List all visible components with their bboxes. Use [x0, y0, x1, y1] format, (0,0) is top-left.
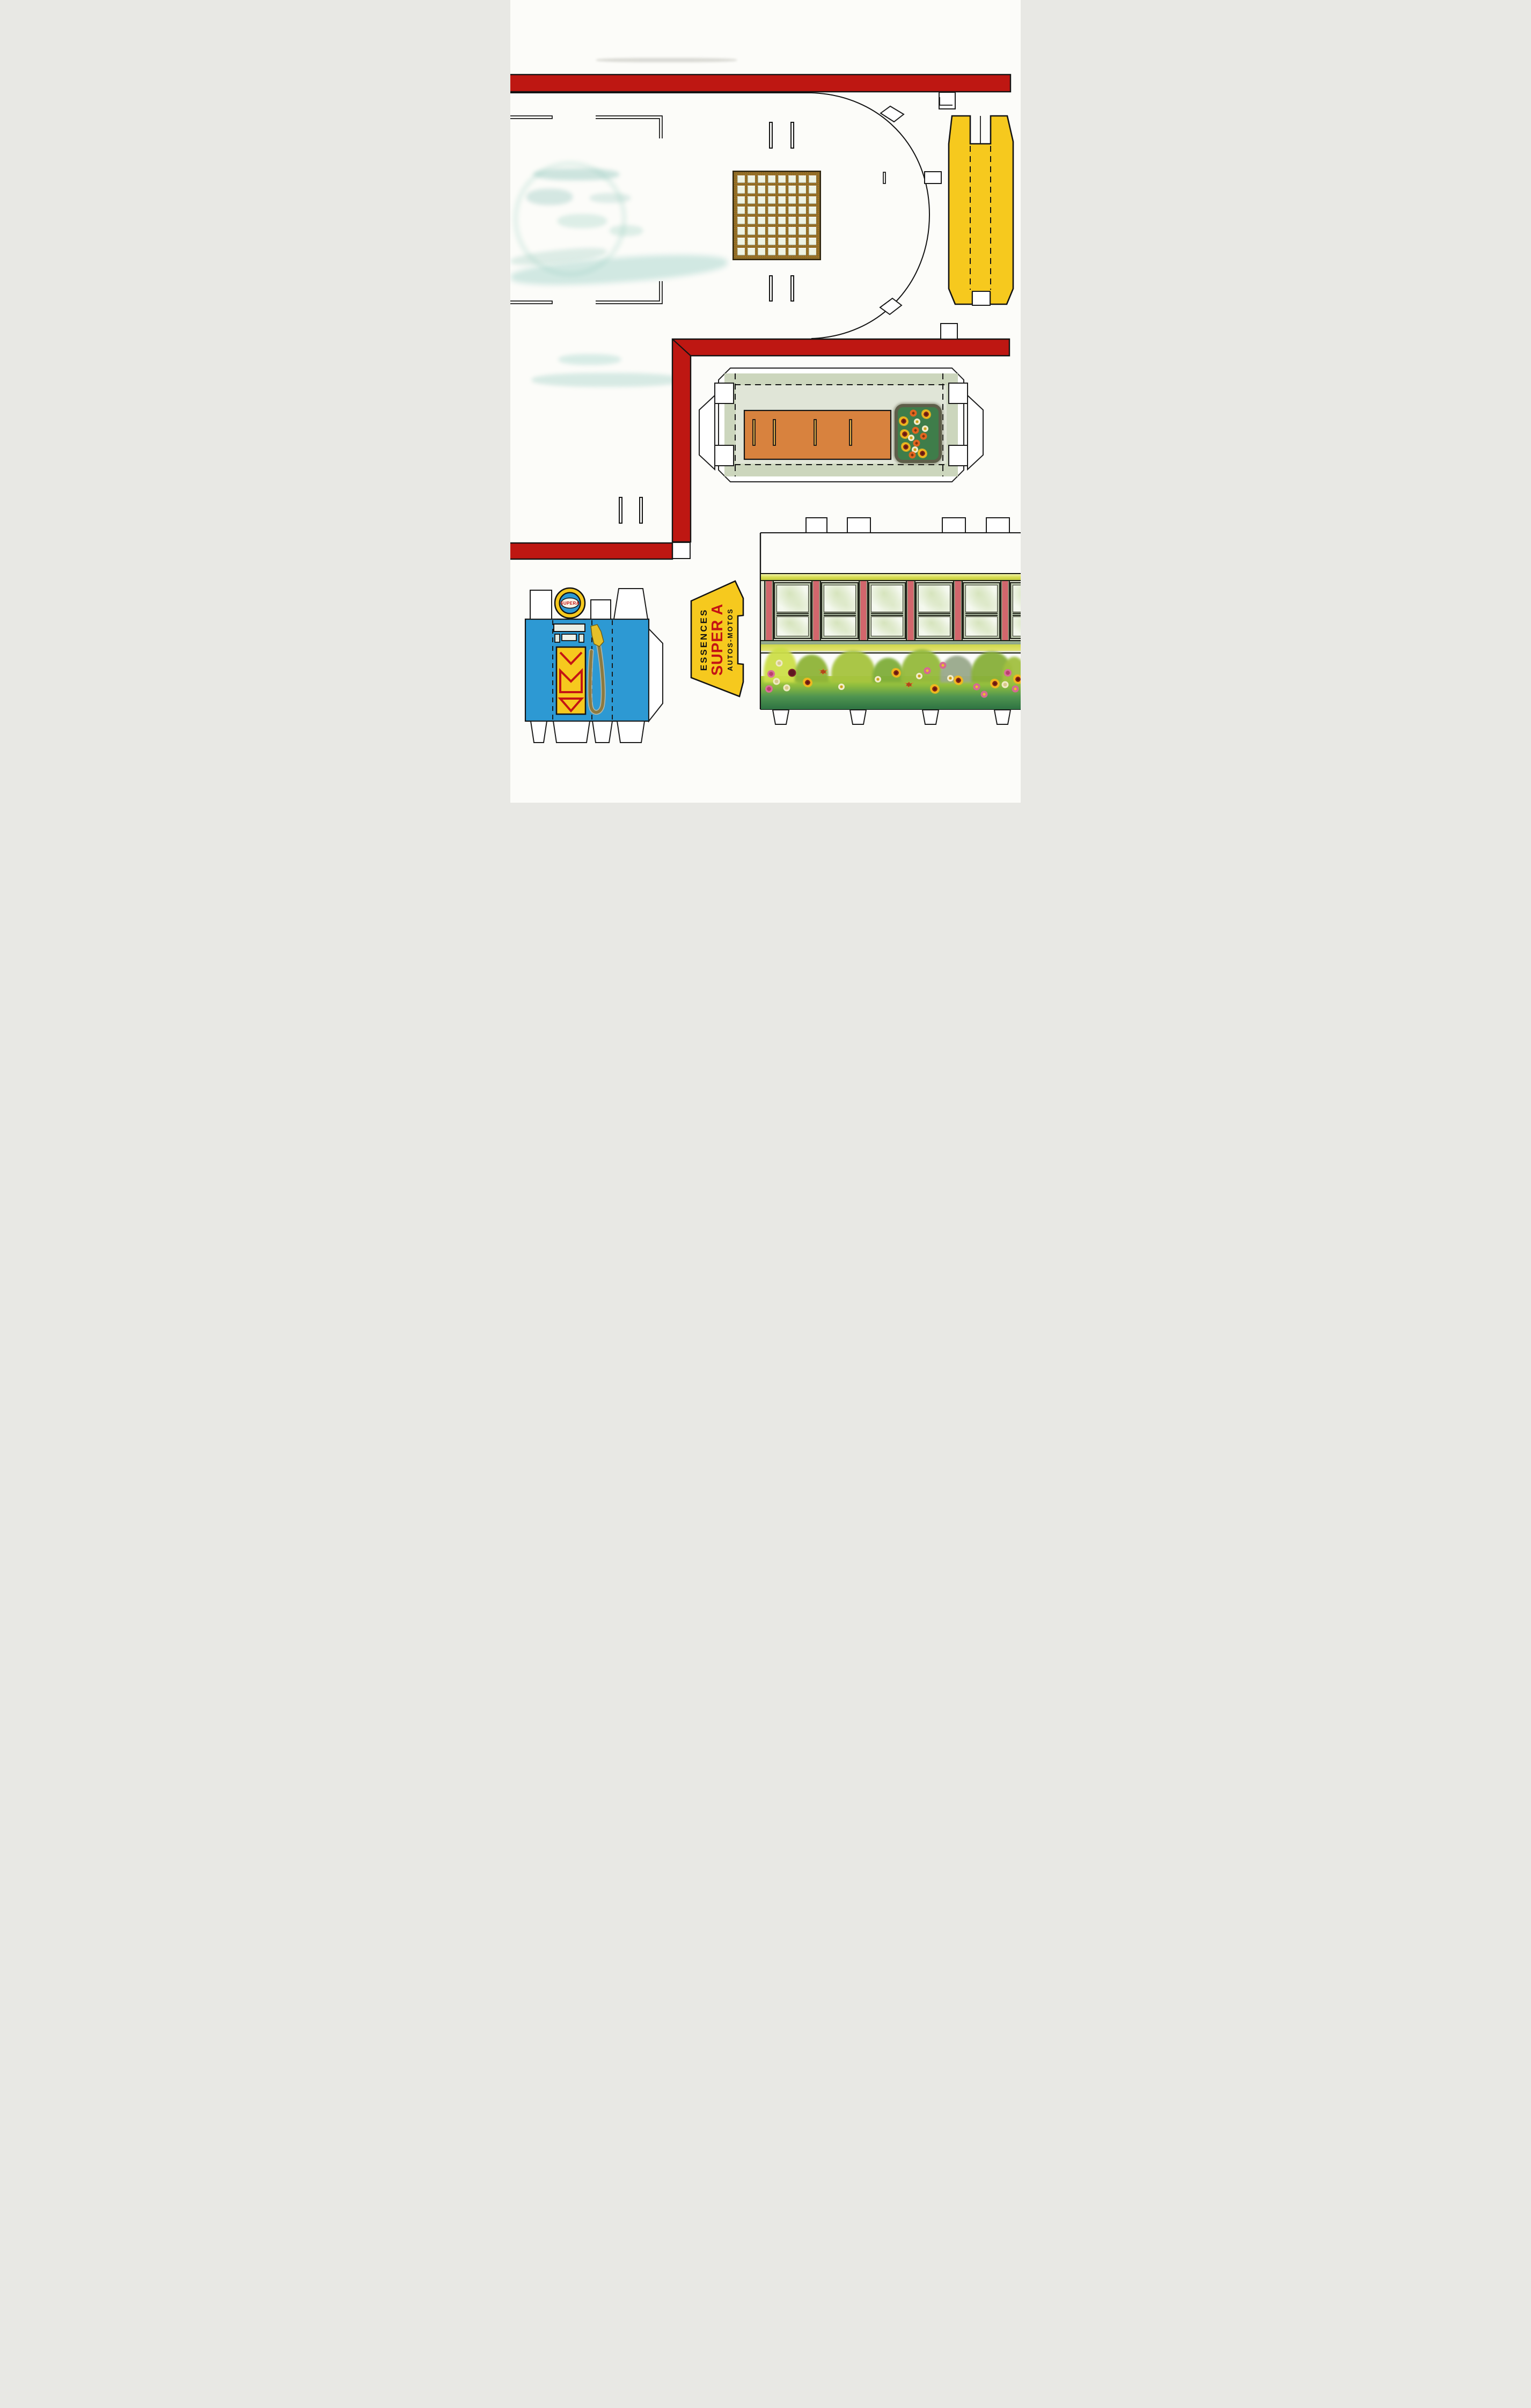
window-row — [761, 581, 1021, 640]
skylight-pane — [737, 207, 745, 214]
skylight-pane — [788, 186, 796, 193]
window-pillar — [764, 581, 774, 640]
papercraft-sheet: SUPERA ESSENCES SUPER A AUTOS-MOTOS — [510, 0, 1021, 803]
skylight-pane — [768, 186, 775, 193]
flower-zinnia — [913, 439, 920, 446]
flower-rose_cream — [783, 685, 790, 692]
flower-daisy — [838, 684, 845, 690]
flower-marigold — [919, 450, 927, 458]
skylight-pane — [788, 227, 796, 234]
skylight-pane — [748, 238, 755, 245]
flower-poppy — [939, 662, 946, 669]
flower-marigold — [922, 410, 931, 418]
glue-tab — [715, 383, 734, 403]
planter-box-top — [744, 410, 891, 459]
skylight-pane — [778, 248, 786, 255]
skylight-pane — [768, 196, 775, 204]
skylight-pane — [748, 227, 755, 234]
foot-tab — [850, 710, 866, 724]
window-mullion — [777, 613, 809, 616]
shop-window — [774, 582, 811, 639]
window-pane-lower — [918, 616, 950, 636]
window-pane-upper — [965, 585, 998, 612]
window-pane-upper — [918, 585, 950, 612]
skylight-pane — [799, 207, 806, 214]
window-pillar — [953, 581, 963, 640]
yellow-pillar-piece — [949, 116, 1013, 305]
foot-tab — [553, 721, 590, 743]
skylight-pane — [809, 217, 816, 224]
skylight-pane — [799, 227, 806, 234]
shop-window — [868, 582, 906, 639]
window-pane-lower — [871, 616, 903, 636]
glue-tab — [881, 106, 904, 122]
skylight-pane — [778, 196, 786, 204]
foot-tab — [773, 710, 789, 724]
skylight-pane — [809, 227, 816, 234]
glue-tab — [942, 518, 965, 533]
flower-daisy — [947, 675, 954, 681]
window-mullion — [1013, 613, 1021, 616]
shop-window — [821, 582, 859, 639]
skylight-pane — [799, 175, 806, 183]
skylight-pane — [809, 196, 816, 204]
skylight-pane — [778, 175, 786, 183]
window-pane-lower — [1013, 616, 1021, 636]
skylight-pane — [778, 238, 786, 245]
skylight-pane — [737, 175, 745, 183]
end-tab — [699, 395, 715, 469]
flower-marigold — [892, 669, 900, 677]
pump-globe-text: SUPERA — [560, 601, 580, 606]
skylight-pane — [788, 196, 796, 204]
skylight-pane — [799, 238, 806, 245]
flower-marigold — [991, 680, 999, 688]
skylight-pane — [788, 175, 796, 183]
window-mullion — [918, 613, 950, 616]
flower-marigold — [1014, 676, 1021, 684]
end-tab — [968, 395, 983, 469]
skylight-pane — [799, 186, 806, 193]
flower-rose_pink — [765, 685, 773, 693]
window-mullion — [965, 613, 998, 616]
glue-tab — [672, 542, 690, 559]
slot-slit — [814, 420, 816, 445]
skylight-pane — [768, 227, 775, 234]
flower-marigold — [931, 685, 939, 693]
window-mullion — [871, 613, 903, 616]
skylight-pane — [799, 196, 806, 204]
window-pillar — [811, 581, 821, 640]
glue-tab — [530, 590, 552, 619]
skylight-pane — [809, 248, 816, 255]
skylight-pane — [737, 217, 745, 224]
slot-slit — [770, 122, 772, 148]
foot-tab — [994, 710, 1010, 724]
skylight-pane — [768, 207, 775, 214]
skylight-pane — [758, 207, 765, 214]
flower-daisy — [914, 419, 920, 425]
flower-rose_cream — [773, 678, 780, 685]
window-pane-lower — [777, 616, 809, 636]
glue-tab — [880, 298, 902, 314]
flower-poppy — [924, 667, 931, 674]
glue-tab — [591, 600, 611, 619]
skylight-pane — [778, 227, 786, 234]
window-pane-lower — [824, 616, 856, 636]
station-sign-text: ESSENCES SUPER A AUTOS-MOTOS — [693, 586, 740, 693]
flower-marigold — [902, 443, 910, 451]
score-mark — [510, 116, 552, 119]
skylight-pane — [809, 238, 816, 245]
foot-tab — [617, 721, 644, 743]
glue-tab — [847, 518, 870, 533]
pump-price-window — [554, 624, 585, 632]
glue-tab — [986, 518, 1009, 533]
glue-tab — [715, 445, 734, 466]
side-tab — [649, 629, 663, 721]
window-mullion — [824, 613, 856, 616]
flower-poppy — [981, 691, 988, 698]
slot-slit — [770, 276, 772, 301]
skylight-pane — [737, 248, 745, 255]
pump-counter — [562, 634, 576, 641]
glue-tab — [925, 172, 941, 183]
skylight-pane — [758, 248, 765, 255]
slot-slit — [640, 497, 642, 523]
skylight-pane — [788, 238, 796, 245]
flower-rose_cream — [775, 660, 782, 667]
window-pillar — [906, 581, 915, 640]
foot-tab — [922, 710, 939, 724]
window-pane-upper — [871, 585, 903, 612]
skylight-pane — [748, 207, 755, 214]
flower-zinnia — [910, 409, 917, 416]
skylight-pane — [758, 186, 765, 193]
flower-marigold — [900, 417, 908, 425]
foot-tab — [592, 721, 612, 743]
window-pane-upper — [1013, 585, 1021, 612]
window-pane-lower — [965, 616, 998, 636]
skylight-pane — [748, 186, 755, 193]
glue-tab — [949, 383, 968, 403]
garden-strip — [761, 656, 1021, 709]
shop-window — [1010, 582, 1021, 639]
skylight-grid — [734, 172, 820, 259]
skylight-pane — [768, 238, 775, 245]
window-band — [761, 573, 1021, 654]
flower-poppy — [973, 684, 980, 691]
skylight-pane — [788, 217, 796, 224]
skylight-pane — [768, 248, 775, 255]
glue-tab — [939, 92, 955, 109]
window-top-rail — [761, 574, 1021, 581]
foot-tab — [531, 721, 547, 743]
skylight-pane — [768, 175, 775, 183]
slot-slit — [791, 122, 794, 148]
skylight-pane — [737, 186, 745, 193]
window-pillar — [859, 581, 868, 640]
skylight-pane — [758, 196, 765, 204]
score-mark — [510, 301, 552, 304]
skylight-pane — [778, 207, 786, 214]
skylight-pane — [809, 175, 816, 183]
skylight-pane — [809, 207, 816, 214]
flower-daisy — [916, 673, 922, 679]
skylight-pane — [737, 196, 745, 204]
skylight-pane — [778, 217, 786, 224]
glue-tab — [941, 324, 957, 339]
skylight-pane — [799, 248, 806, 255]
slot-slit — [773, 420, 775, 445]
window-bottom-yellow-rail — [761, 644, 1021, 651]
flower-rose_pink — [767, 670, 775, 678]
glue-tab — [806, 518, 827, 533]
skylight-pane — [748, 175, 755, 183]
slot-slit — [619, 497, 622, 523]
window-pane-upper — [824, 585, 856, 612]
skylight-pane — [748, 217, 755, 224]
flower-zinnia — [920, 432, 927, 439]
skylight-pane — [758, 238, 765, 245]
glue-tab — [614, 589, 648, 619]
glue-tab — [949, 445, 968, 466]
pump-dial — [555, 634, 560, 642]
skylight-pane — [788, 207, 796, 214]
flower-zinnia — [909, 452, 916, 459]
slot-slit — [791, 276, 794, 301]
flower-poppy — [1012, 686, 1019, 693]
flower-marigold — [804, 679, 812, 687]
skylight-pane — [768, 217, 775, 224]
window-pillar — [1000, 581, 1010, 640]
sign-line-super-a: SUPER A — [710, 604, 726, 676]
planter-flower-patch — [895, 404, 942, 463]
pump-dial — [579, 634, 584, 642]
skylight-pane — [737, 238, 745, 245]
flower-rose_dark — [788, 669, 796, 677]
window-bottom-sage-rail — [761, 640, 1021, 644]
skylight-pane — [748, 248, 755, 255]
shop-window — [963, 582, 1000, 639]
shop-window — [915, 582, 953, 639]
skylight-pane — [809, 186, 816, 193]
skylight-pane — [737, 227, 745, 234]
skylight-pane — [758, 175, 765, 183]
flower-zinnia — [912, 427, 919, 434]
slot-slit — [883, 172, 885, 183]
flower-rose_cream — [1001, 681, 1008, 688]
flower-daisy — [908, 435, 914, 441]
slot-slit — [849, 420, 852, 445]
top-red-roof-strip — [510, 75, 1010, 109]
flower-daisy — [922, 425, 928, 432]
window-pane-upper — [777, 585, 809, 612]
sign-line-autos-motos: AUTOS-MOTOS — [727, 608, 734, 671]
glue-tab — [972, 291, 990, 305]
skylight-pane — [758, 217, 765, 224]
slot-slit — [753, 420, 755, 445]
skylight-pane — [799, 217, 806, 224]
skylight-pane — [778, 186, 786, 193]
flower-rose_pink — [1004, 669, 1012, 677]
flower-marigold — [954, 677, 962, 685]
skylight-pane — [788, 248, 796, 255]
flower-daisy — [875, 676, 881, 682]
sign-line-essences: ESSENCES — [699, 608, 708, 671]
gas-pump-piece: SUPERA — [525, 588, 663, 743]
skylight-pane — [758, 227, 765, 234]
skylight-pane — [748, 196, 755, 204]
